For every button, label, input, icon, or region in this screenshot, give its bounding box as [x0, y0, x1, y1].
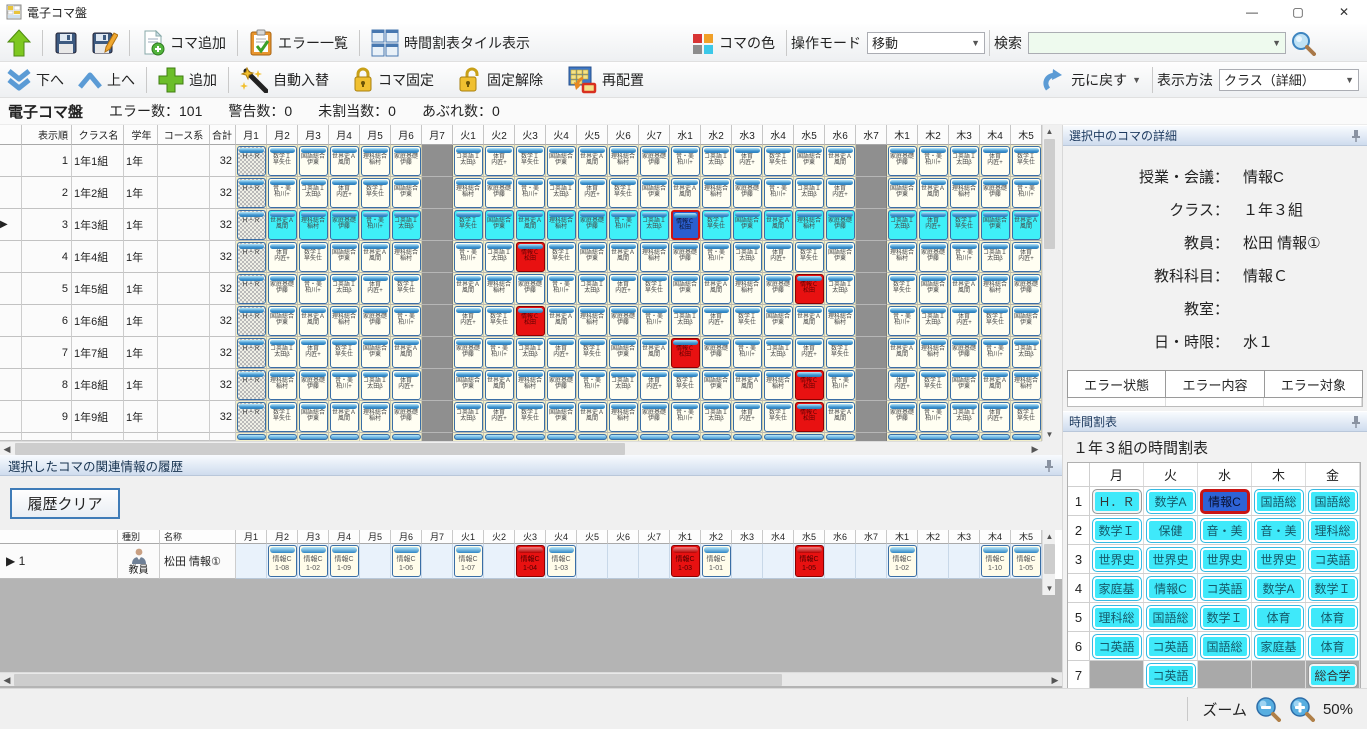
day-cell[interactable]: 情報Ｃ松田	[670, 337, 701, 369]
move-up-button[interactable]: 上へ	[71, 67, 142, 93]
koma-tile[interactable]: 体育内匠+	[485, 146, 514, 176]
mini-timetable-cell[interactable]: 音・美	[1198, 516, 1252, 544]
history-koma-tile[interactable]: 情報C1-03	[547, 545, 576, 577]
koma-tile[interactable]: 家庭基礎伊藤	[485, 178, 514, 208]
koma-tile[interactable]: 理科総合稲村	[733, 274, 762, 304]
mini-timetable-cell[interactable]: 情報C	[1144, 574, 1198, 602]
view-method-select[interactable]: クラス（詳細）▼	[1219, 69, 1359, 91]
mini-timetable-cell[interactable]: 理科総	[1306, 516, 1360, 544]
koma-tile[interactable]: 世界史Ａ風間	[888, 338, 917, 368]
koma-tile[interactable]: 数学Ｉ早矢仕	[516, 402, 545, 432]
save-as-button[interactable]	[85, 28, 125, 58]
day-cell[interactable]: 音・美柏川+	[887, 305, 918, 337]
koma-tile[interactable]: 家庭基礎伊藤	[454, 338, 483, 368]
koma-tile[interactable]: 数学Ｉ早矢仕	[640, 274, 669, 304]
koma-tile[interactable]: 数学Ｉ早矢仕	[1012, 402, 1041, 432]
koma-tile[interactable]: 体育内匠+	[981, 402, 1010, 432]
day-cell[interactable]: 世界史Ａ風間	[794, 305, 825, 337]
koma-tile[interactable]: 理科総合稲村	[454, 178, 483, 208]
day-cell[interactable]: 理科総合稲村	[980, 273, 1011, 305]
mini-timetable-cell[interactable]: 数学Ｉ	[1090, 516, 1144, 544]
day-cell[interactable]: 体育内匠+	[577, 177, 608, 209]
scroll-down-arrow[interactable]: ▼	[1043, 582, 1056, 595]
auto-swap-button[interactable]: 自動入替	[233, 64, 336, 96]
day-cell[interactable]: 数学Ｉ早矢仕	[1011, 145, 1042, 177]
day-cell[interactable]: コ英語Ｉ太田β	[701, 145, 732, 177]
day-cell[interactable]: 世界史Ａ風間	[391, 337, 422, 369]
koma-tile[interactable]: 世界史Ａ風間	[640, 338, 669, 368]
koma-tile[interactable]: 数学Ｉ早矢仕	[826, 338, 855, 368]
mini-koma-tile[interactable]: 体育	[1308, 634, 1358, 659]
day-cell[interactable]: コ英語Ｉ太田β	[949, 401, 980, 433]
koma-tile[interactable]: 世界史Ａ風間	[578, 146, 607, 176]
koma-tile[interactable]: 国語総合伊東	[268, 306, 297, 336]
day-cell[interactable]: 音・美柏川+	[298, 273, 329, 305]
koma-tile[interactable]: 家庭基礎伊藤	[671, 242, 700, 272]
day-cell[interactable]: コ英語Ｉ太田β	[825, 273, 856, 305]
day-cell[interactable]: 音・美柏川+	[391, 305, 422, 337]
day-cell[interactable]: 家庭基礎伊藤	[267, 273, 298, 305]
koma-tile[interactable]: 理科総合稲村	[919, 338, 948, 368]
minimize-button[interactable]: —	[1229, 0, 1275, 24]
day-cell[interactable]: 世界史Ａ風間	[577, 145, 608, 177]
mini-koma-tile[interactable]: 世界史	[1146, 547, 1196, 572]
mini-koma-tile[interactable]: 家庭基	[1092, 576, 1142, 601]
history-day-cell[interactable]: 情報C1-08	[267, 544, 298, 579]
koma-tile[interactable]: コ英語Ｉ太田β	[392, 210, 421, 240]
koma-tile[interactable]: 体育内匠+	[981, 146, 1010, 176]
history-day-cell[interactable]: 情報C1-05	[1011, 544, 1042, 579]
koma-tile[interactable]: Ｈ・Ｒ	[237, 146, 266, 176]
day-cell[interactable]: 国語総合伊東	[360, 337, 391, 369]
mini-timetable-cell[interactable]: 世界史	[1198, 545, 1252, 573]
koma-tile[interactable]: 理科総合稲村	[609, 402, 638, 432]
day-cell[interactable]: 数学Ｉ早矢仕	[949, 209, 980, 241]
day-cell[interactable]: 国語総合伊東	[484, 209, 515, 241]
koma-tile[interactable]: 数学Ｉ早矢仕	[671, 370, 700, 400]
history-koma-tile[interactable]: 情報C1-01	[702, 545, 731, 577]
day-cell[interactable]: 数学Ｉ早矢仕	[918, 369, 949, 401]
day-cell[interactable]: 家庭基礎伊藤	[763, 273, 794, 305]
koma-tile[interactable]: 家庭基礎伊藤	[981, 178, 1010, 208]
day-cell[interactable]: 家庭基礎伊藤	[887, 145, 918, 177]
day-cell[interactable]: 音・美柏川+	[608, 209, 639, 241]
day-cell[interactable]: 情報Ｃ松田	[515, 241, 546, 273]
koma-tile[interactable]: 国語総合伊東	[454, 370, 483, 400]
koma-tile[interactable]: 理科総合稲村	[392, 242, 421, 272]
koma-tile[interactable]: 情報Ｃ松田	[795, 274, 824, 304]
day-cell[interactable]: 体育内匠+	[608, 273, 639, 305]
koma-tile[interactable]: 国語総合伊東	[795, 146, 824, 176]
day-cell[interactable]: 体育内匠+	[639, 369, 670, 401]
history-koma-tile[interactable]: 情報C1-06	[392, 545, 421, 577]
add-button[interactable]: 追加	[151, 64, 224, 96]
day-cell[interactable]: Ｈ・Ｒ	[236, 401, 267, 433]
koma-tile[interactable]: 家庭基礎伊藤	[733, 178, 762, 208]
mini-koma-tile[interactable]: 国語総	[1308, 489, 1358, 514]
koma-tile[interactable]: 体育内匠+	[919, 210, 948, 240]
koma-tile[interactable]: 家庭基礎伊藤	[888, 146, 917, 176]
koma-fix-button[interactable]: コマ固定	[346, 64, 441, 96]
mini-timetable-cell[interactable]: 国語総	[1306, 487, 1360, 515]
day-cell[interactable]: 世界史Ａ風間	[701, 273, 732, 305]
rearrange-button[interactable]: 再配置	[560, 63, 651, 97]
mini-koma-tile[interactable]: コ英語	[1146, 634, 1196, 659]
day-cell[interactable]: コ英語Ｉ太田β	[1011, 337, 1042, 369]
day-cell[interactable]: 世界史Ａ風間	[546, 305, 577, 337]
koma-tile[interactable]: 情報Ｃ松田	[671, 338, 700, 368]
koma-tile[interactable]: 数学Ｉ早矢仕	[392, 274, 421, 304]
mini-koma-tile[interactable]: コ英語	[1200, 576, 1250, 601]
day-cell[interactable]: 国語総合伊東	[639, 177, 670, 209]
koma-tile[interactable]: コ英語Ｉ太田β	[1012, 338, 1041, 368]
history-vertical-scrollbar[interactable]: ▲ ▼	[1042, 530, 1055, 595]
day-cell[interactable]: 世界史Ａ風間	[1011, 209, 1042, 241]
mini-timetable-cell[interactable]: 家庭基	[1090, 574, 1144, 602]
day-cell[interactable]: 理科総合稲村	[577, 305, 608, 337]
day-cell[interactable]: 理科総合稲村	[608, 145, 639, 177]
mini-timetable-cell[interactable]: 理科総	[1090, 603, 1144, 631]
history-koma-tile[interactable]: 情報C1-10	[981, 545, 1010, 577]
scroll-up-arrow[interactable]: ▲	[1043, 125, 1056, 138]
day-cell[interactable]: 体育内匠+	[546, 337, 577, 369]
day-cell[interactable]: コ英語Ｉ太田β	[298, 177, 329, 209]
mini-timetable-cell[interactable]: コ英語	[1306, 545, 1360, 573]
day-cell[interactable]: 数学Ｉ早矢仕	[639, 273, 670, 305]
history-koma-tile[interactable]: 情報C1-05	[1012, 545, 1041, 577]
day-cell[interactable]: コ英語Ｉ太田β	[794, 177, 825, 209]
day-cell[interactable]: 音・美柏川+	[980, 337, 1011, 369]
koma-tile[interactable]: 音・美柏川+	[671, 402, 700, 432]
koma-tile[interactable]: 音・美柏川+	[733, 338, 762, 368]
error-table-column-header[interactable]: エラー対象	[1264, 370, 1363, 398]
koma-tile[interactable]: コ英語Ｉ太田β	[702, 402, 731, 432]
koma-tile[interactable]: 音・美柏川+	[392, 306, 421, 336]
koma-tile[interactable]: 国語総合伊東	[299, 146, 328, 176]
day-cell[interactable]: 家庭基礎伊藤	[360, 305, 391, 337]
day-cell[interactable]: 国語総合伊東	[267, 305, 298, 337]
koma-tile[interactable]: 音・美柏川+	[609, 210, 638, 240]
day-cell[interactable]: 国語総合伊東	[980, 209, 1011, 241]
koma-tile[interactable]: 世界史Ａ風間	[733, 370, 762, 400]
mini-koma-tile[interactable]: 世界史	[1092, 547, 1142, 572]
day-cell[interactable]: 家庭基礎伊藤	[1011, 273, 1042, 305]
koma-tile[interactable]: Ｈ・Ｒ	[237, 370, 266, 400]
koma-tile[interactable]: 国語総合伊東	[919, 274, 948, 304]
koma-tile[interactable]: 体育内匠+	[1012, 242, 1041, 272]
koma-tile[interactable]: 国語総合伊東	[485, 210, 514, 240]
koma-color-button[interactable]: コマの色	[685, 28, 782, 58]
mini-koma-tile[interactable]: 数学Ｉ	[1308, 576, 1358, 601]
koma-tile[interactable]: 音・美柏川+	[764, 178, 793, 208]
koma-tile[interactable]: 音・美柏川+	[299, 274, 328, 304]
koma-tile[interactable]: 音・美柏川+	[919, 146, 948, 176]
scroll-right-arrow[interactable]: ▶	[1048, 673, 1062, 687]
mini-koma-tile[interactable]: 家庭基	[1254, 634, 1304, 659]
day-cell[interactable]: Ｈ・Ｒ	[236, 305, 267, 337]
day-cell[interactable]: 家庭基礎伊藤	[577, 209, 608, 241]
koma-tile[interactable]: コ英語Ｉ太田β	[547, 178, 576, 208]
day-cell[interactable]: 国語総合伊東	[701, 369, 732, 401]
day-cell[interactable]: 数学Ｉ早矢仕	[794, 241, 825, 273]
koma-tile[interactable]: Ｈ・Ｒ	[237, 242, 266, 272]
koma-tile[interactable]: 理科総合稲村	[485, 274, 514, 304]
mini-timetable-cell[interactable]: Ｈ．Ｒ	[1090, 487, 1144, 515]
day-cell[interactable]: 家庭基礎伊藤	[701, 337, 732, 369]
day-cell[interactable]: 体育内匠+	[732, 145, 763, 177]
day-cell[interactable]: 音・美柏川+	[763, 177, 794, 209]
koma-tile[interactable]: 理科総合稲村	[826, 306, 855, 336]
day-cell[interactable]: 家庭基礎伊藤	[732, 177, 763, 209]
save-button[interactable]	[47, 28, 85, 58]
koma-tile[interactable]: 家庭基礎伊藤	[764, 274, 793, 304]
koma-tile[interactable]: Ｈ・Ｒ	[237, 306, 266, 336]
day-cell[interactable]: 家庭基礎伊藤	[515, 273, 546, 305]
koma-tile[interactable]: 数学Ｉ早矢仕	[268, 402, 297, 432]
day-cell[interactable]: 情報Ｃ松田	[794, 401, 825, 433]
day-cell[interactable]: 理科総合稲村	[763, 369, 794, 401]
chevron-down-icon[interactable]: ▼	[1272, 38, 1281, 48]
day-cell[interactable]: Ｈ・Ｒ	[236, 273, 267, 305]
koma-tile[interactable]: 家庭基礎伊藤	[826, 210, 855, 240]
pin-icon[interactable]	[1350, 129, 1361, 142]
koma-tile[interactable]: 体育内匠+	[733, 146, 762, 176]
koma-tile[interactable]: 世界史Ａ風間	[454, 274, 483, 304]
mini-koma-tile[interactable]: 世界史	[1254, 547, 1304, 572]
koma-tile[interactable]: 国語総合伊東	[578, 242, 607, 272]
koma-tile[interactable]: 世界史Ａ風間	[950, 274, 979, 304]
koma-tile[interactable]: 数学Ｉ早矢仕	[702, 210, 731, 240]
day-cell[interactable]: 国語総合伊東	[763, 305, 794, 337]
koma-tile[interactable]: 家庭基礎伊藤	[547, 370, 576, 400]
chevron-down-icon[interactable]: ▼	[1132, 75, 1141, 85]
mini-koma-tile[interactable]: 数学Ｉ	[1092, 518, 1142, 543]
row-selector-cell[interactable]	[0, 369, 22, 401]
koma-tile[interactable]: 体育内匠+	[764, 242, 793, 272]
koma-tile[interactable]: 世界史Ａ風間	[795, 306, 824, 336]
koma-tile[interactable]: 世界史Ａ風間	[268, 210, 297, 240]
day-cell[interactable]: 体育内匠+	[980, 401, 1011, 433]
koma-tile[interactable]: 体育内匠+	[485, 402, 514, 432]
day-cell[interactable]: 体育内匠+	[980, 145, 1011, 177]
mini-timetable-cell[interactable]: コ英語	[1198, 574, 1252, 602]
day-cell[interactable]: コ英語Ｉ太田β	[980, 241, 1011, 273]
koma-tile[interactable]: 世界史Ａ風間	[1012, 210, 1041, 240]
day-cell[interactable]: 音・美柏川+	[825, 369, 856, 401]
mini-koma-tile-selected[interactable]: 情報C	[1200, 489, 1250, 514]
day-cell[interactable]: 理科総合稲村	[732, 273, 763, 305]
koma-tile[interactable]: 数学Ｉ早矢仕	[299, 242, 328, 272]
day-cell[interactable]: 音・美柏川+	[949, 241, 980, 273]
koma-tile[interactable]: 体育内匠+	[950, 306, 979, 336]
day-cell[interactable]: コ英語Ｉ太田β	[546, 177, 577, 209]
day-cell[interactable]: コ英語Ｉ太田β	[918, 305, 949, 337]
history-day-cell[interactable]: 情報C1-04	[515, 544, 546, 579]
day-cell[interactable]: Ｈ・Ｒ	[236, 177, 267, 209]
day-cell[interactable]: 音・美柏川+	[918, 401, 949, 433]
day-cell[interactable]: 世界史Ａ風間	[298, 305, 329, 337]
koma-tile[interactable]: コ英語Ｉ太田β	[950, 146, 979, 176]
day-cell[interactable]: 家庭基礎伊藤	[980, 177, 1011, 209]
day-cell[interactable]: コ英語Ｉ太田β	[360, 369, 391, 401]
history-koma-tile[interactable]: 情報C1-05	[795, 545, 824, 577]
koma-tile[interactable]: 世界史Ａ風間	[609, 242, 638, 272]
koma-tile[interactable]: コ英語Ｉ太田β	[299, 178, 328, 208]
koma-tile[interactable]: 家庭基礎伊藤	[919, 242, 948, 272]
day-cell[interactable]: 理科総合稲村	[515, 369, 546, 401]
koma-tile[interactable]: 国語総合伊東	[547, 402, 576, 432]
koma-tile[interactable]: 数学Ｉ早矢仕	[733, 306, 762, 336]
koma-tile[interactable]: 数学Ｉ早矢仕	[268, 146, 297, 176]
koma-tile[interactable]: コ英語Ｉ太田β	[330, 274, 359, 304]
day-cell[interactable]: 国語総合伊東	[918, 273, 949, 305]
koma-tile[interactable]: 世界史Ａ風間	[764, 210, 793, 240]
day-cell[interactable]: 家庭基礎伊藤	[329, 209, 360, 241]
mini-timetable-cell[interactable]: 世界史	[1252, 545, 1306, 573]
koma-tile[interactable]: 家庭基礎伊藤	[1012, 274, 1041, 304]
day-cell[interactable]: 音・美柏川+	[577, 369, 608, 401]
koma-tile[interactable]: 家庭基礎伊藤	[516, 274, 545, 304]
day-cell[interactable]: 世界史Ａ風間	[918, 177, 949, 209]
day-cell[interactable]: 体育内匠+	[484, 145, 515, 177]
scroll-left-arrow[interactable]: ◀	[0, 673, 14, 687]
day-cell[interactable]: 理科総合稲村	[360, 145, 391, 177]
koma-tile[interactable]: 数学Ｉ早矢仕	[578, 338, 607, 368]
koma-tile[interactable]: 音・美柏川+	[950, 242, 979, 272]
mini-koma-tile[interactable]: 国語総	[1146, 605, 1196, 630]
day-cell[interactable]: 理科総合稲村	[329, 305, 360, 337]
day-cell[interactable]: 家庭基礎伊藤	[391, 401, 422, 433]
day-cell[interactable]: 理科総合稲村	[887, 241, 918, 273]
day-cell[interactable]: 家庭基礎伊藤	[608, 305, 639, 337]
koma-tile[interactable]: 理科総合稲村	[516, 370, 545, 400]
koma-tile[interactable]: 理科総合稲村	[609, 146, 638, 176]
koma-tile[interactable]: 家庭基礎伊藤	[392, 402, 421, 432]
mini-koma-tile[interactable]: 理科総	[1092, 605, 1142, 630]
day-cell[interactable]: Ｈ・Ｒ	[236, 369, 267, 401]
day-cell[interactable]: 体育内匠+	[267, 241, 298, 273]
mini-timetable-cell[interactable]: 情報C	[1198, 487, 1252, 515]
koma-tile[interactable]: コ英語Ｉ太田β	[485, 242, 514, 272]
mini-koma-tile[interactable]: 情報C	[1146, 576, 1196, 601]
day-cell[interactable]: 体育内匠+	[825, 177, 856, 209]
koma-tile[interactable]: 世界史Ａ風間	[547, 306, 576, 336]
day-cell[interactable]: 世界史Ａ風間	[484, 369, 515, 401]
day-cell[interactable]: 家庭基礎伊藤	[825, 209, 856, 241]
mini-koma-tile[interactable]: 数学Ｉ	[1200, 605, 1250, 630]
day-cell[interactable]: コ英語Ｉ太田β	[763, 337, 794, 369]
koma-tile[interactable]: 国語総合伊東	[330, 242, 359, 272]
day-cell[interactable]: 理科総合稲村	[453, 177, 484, 209]
error-list-button[interactable]: エラー一覧	[242, 26, 355, 59]
day-cell[interactable]: 数学Ｉ早矢仕	[298, 241, 329, 273]
koma-tile[interactable]: 理科総合稲村	[1012, 370, 1041, 400]
day-cell[interactable]: Ｈ・Ｒ	[236, 241, 267, 273]
history-day-cell[interactable]: 情報C1-07	[453, 544, 484, 579]
koma-tile[interactable]: 国語総合伊東	[950, 370, 979, 400]
day-cell[interactable]: Ｈ・Ｒ	[236, 145, 267, 177]
day-cell[interactable]: 音・美柏川+	[267, 177, 298, 209]
koma-tile[interactable]: コ英語Ｉ太田β	[609, 370, 638, 400]
koma-tile[interactable]: 国語総合伊東	[640, 178, 669, 208]
day-cell[interactable]: 数学Ｉ早矢仕	[1011, 401, 1042, 433]
grid-horizontal-scrollbar[interactable]: ◀ ▶	[0, 441, 1042, 455]
koma-tile[interactable]: コ英語Ｉ太田β	[578, 274, 607, 304]
mini-koma-tile[interactable]: 音・美	[1254, 518, 1304, 543]
day-cell[interactable]: 世界史Ａ風間	[329, 401, 360, 433]
day-cell[interactable]: コ英語Ｉ太田β	[608, 369, 639, 401]
koma-tile[interactable]: 数学Ｉ早矢仕	[454, 210, 483, 240]
search-input[interactable]	[1042, 34, 1272, 52]
koma-tile[interactable]: 国語総合伊東	[888, 178, 917, 208]
koma-tile[interactable]: 体育内匠+	[795, 338, 824, 368]
koma-tile[interactable]: 音・美柏川+	[981, 338, 1010, 368]
koma-tile[interactable]: 世界史Ａ風間	[485, 370, 514, 400]
koma-tile[interactable]: 理科総合稲村	[702, 178, 731, 208]
day-cell[interactable]: 音・美柏川+	[1011, 177, 1042, 209]
history-koma-tile[interactable]: 情報C1-08	[268, 545, 297, 577]
koma-tile[interactable]: コ英語Ｉ太田β	[919, 306, 948, 336]
history-day-cell[interactable]: 情報C1-02	[887, 544, 918, 579]
koma-tile[interactable]: Ｈ・Ｒ	[237, 178, 266, 208]
mini-koma-tile[interactable]: コ英語	[1146, 663, 1196, 688]
scroll-right-arrow[interactable]: ▶	[1028, 442, 1042, 456]
day-cell[interactable]: 音・美柏川+	[329, 369, 360, 401]
day-cell[interactable]: 国語総合伊東	[546, 145, 577, 177]
koma-tile[interactable]: 音・美柏川+	[330, 370, 359, 400]
mini-timetable-cell[interactable]: 体育	[1306, 603, 1360, 631]
day-cell[interactable]: 世界史Ａ風間	[732, 369, 763, 401]
day-cell[interactable]: 世界史Ａ風間	[577, 401, 608, 433]
day-cell[interactable]: 音・美柏川+	[453, 241, 484, 273]
koma-tile[interactable]: Ｈ・Ｒ	[237, 402, 266, 432]
day-cell[interactable]: コ英語Ｉ太田β	[639, 209, 670, 241]
mini-koma-tile[interactable]: 数学A	[1146, 489, 1196, 514]
koma-tile[interactable]: 体育内匠+	[361, 274, 390, 304]
koma-tile[interactable]: 音・美柏川+	[485, 338, 514, 368]
koma-tile[interactable]: コ英語Ｉ太田β	[826, 274, 855, 304]
day-cell[interactable]: 体育内匠+	[794, 337, 825, 369]
koma-tile[interactable]: 家庭基礎伊藤	[392, 146, 421, 176]
day-cell[interactable]: 家庭基礎伊藤	[918, 241, 949, 273]
day-cell[interactable]: 国語総合伊東	[391, 177, 422, 209]
day-cell[interactable]: 理科総合稲村	[298, 209, 329, 241]
koma-tile[interactable]: 情報Ｃ松田	[795, 370, 824, 400]
koma-tile[interactable]: 情報Ｃ松田	[516, 306, 545, 336]
koma-tile[interactable]: 家庭基礎伊藤	[299, 370, 328, 400]
koma-tile[interactable]: 理科総合稲村	[330, 306, 359, 336]
koma-tile[interactable]: 体育内匠+	[547, 338, 576, 368]
koma-tile[interactable]: 数学Ｉ早矢仕	[795, 242, 824, 272]
mini-timetable-cell[interactable]: 国語総	[1144, 603, 1198, 631]
day-cell[interactable]: 数学Ｉ早矢仕	[267, 401, 298, 433]
day-cell[interactable]: 情報Ｃ松田	[670, 209, 701, 241]
koma-tile[interactable]: 理科総合稲村	[640, 242, 669, 272]
history-koma-tile[interactable]: 情報C1-02	[299, 545, 328, 577]
day-cell[interactable]: 音・美柏川+	[918, 145, 949, 177]
koma-tile[interactable]: 世界史Ａ風間	[826, 402, 855, 432]
day-cell[interactable]: 世界史Ａ風間	[329, 145, 360, 177]
day-cell[interactable]: 音・美柏川+	[670, 145, 701, 177]
koma-tile[interactable]: 数学Ｉ早矢仕	[764, 146, 793, 176]
koma-tile[interactable]: 世界史Ａ風間	[299, 306, 328, 336]
day-cell[interactable]: 音・美柏川+	[360, 209, 391, 241]
day-cell[interactable]: 数学Ｉ早矢仕	[329, 337, 360, 369]
day-cell[interactable]: 世界史Ａ風間	[608, 241, 639, 273]
day-cell[interactable]: 数学Ｉ早矢仕	[732, 305, 763, 337]
day-cell[interactable]: 理科総合稲村	[825, 305, 856, 337]
history-koma-tile[interactable]: 情報C1-07	[454, 545, 483, 577]
